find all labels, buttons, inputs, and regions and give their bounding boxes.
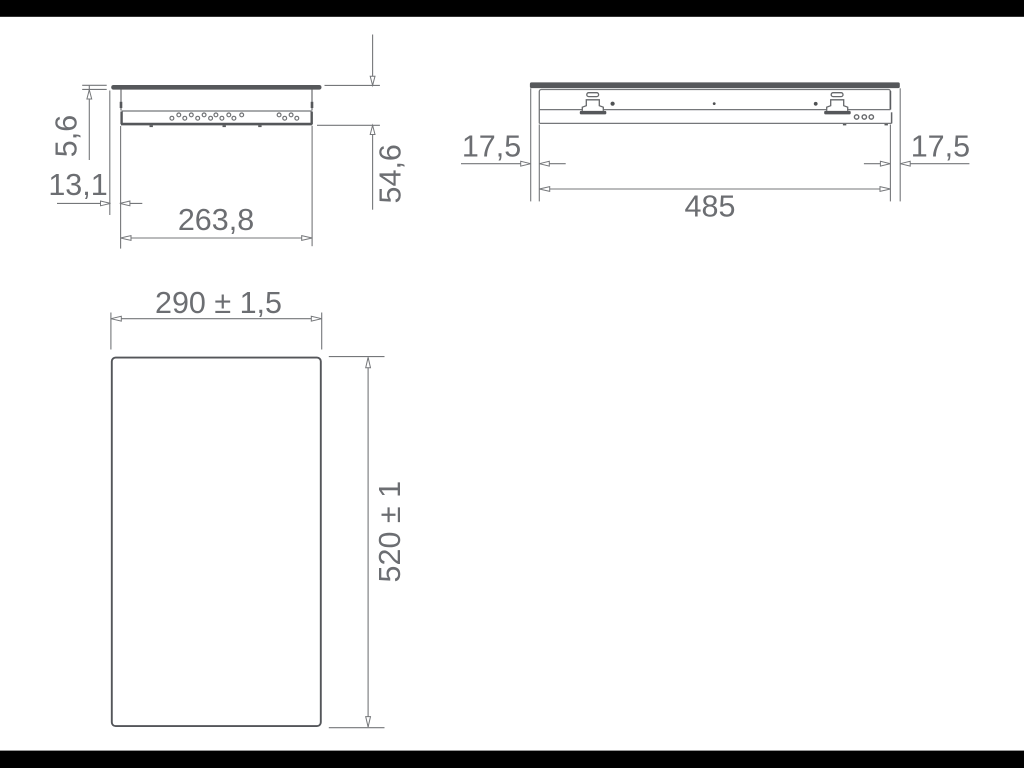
- svg-text:290 ± 1,5: 290 ± 1,5: [155, 286, 282, 320]
- svg-text:520 ± 1: 520 ± 1: [373, 481, 407, 583]
- svg-text:485: 485: [685, 190, 736, 224]
- svg-text:13,1: 13,1: [48, 168, 107, 202]
- svg-text:17,5: 17,5: [462, 129, 521, 163]
- svg-text:54,6: 54,6: [374, 144, 408, 203]
- svg-text:17,5: 17,5: [911, 129, 970, 163]
- svg-text:263,8: 263,8: [178, 203, 254, 237]
- svg-text:5,6: 5,6: [50, 115, 84, 157]
